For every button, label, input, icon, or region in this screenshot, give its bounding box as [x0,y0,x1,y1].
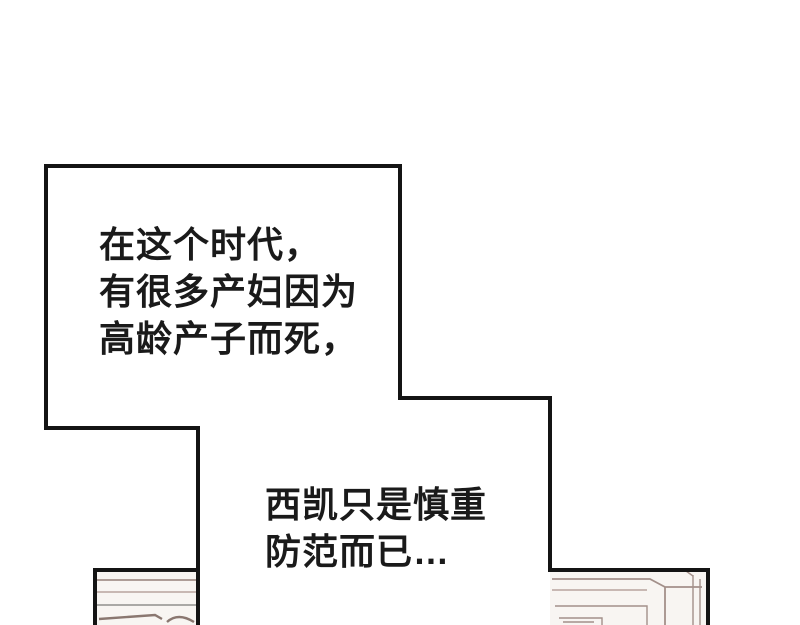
narration-floating-text: 西凯只是慎重 防范而已… [265,481,487,575]
narration-floating-line-1: 西凯只是慎重 [265,481,487,528]
narration-box-text: 在这个时代， 有很多产妇因为 高龄产子而死， [99,221,358,362]
narration-box-line-2: 有很多产妇因为 [99,268,358,315]
narration-floating-line-2: 防范而已… [265,528,487,575]
comic-page: 在这个时代， 有很多产妇因为 高龄产子而死， 西凯只是慎重 防范而已… [0,0,800,625]
narration-box-line-3: 高龄产子而死， [99,315,358,362]
narration-box-line-1: 在这个时代， [99,221,358,268]
